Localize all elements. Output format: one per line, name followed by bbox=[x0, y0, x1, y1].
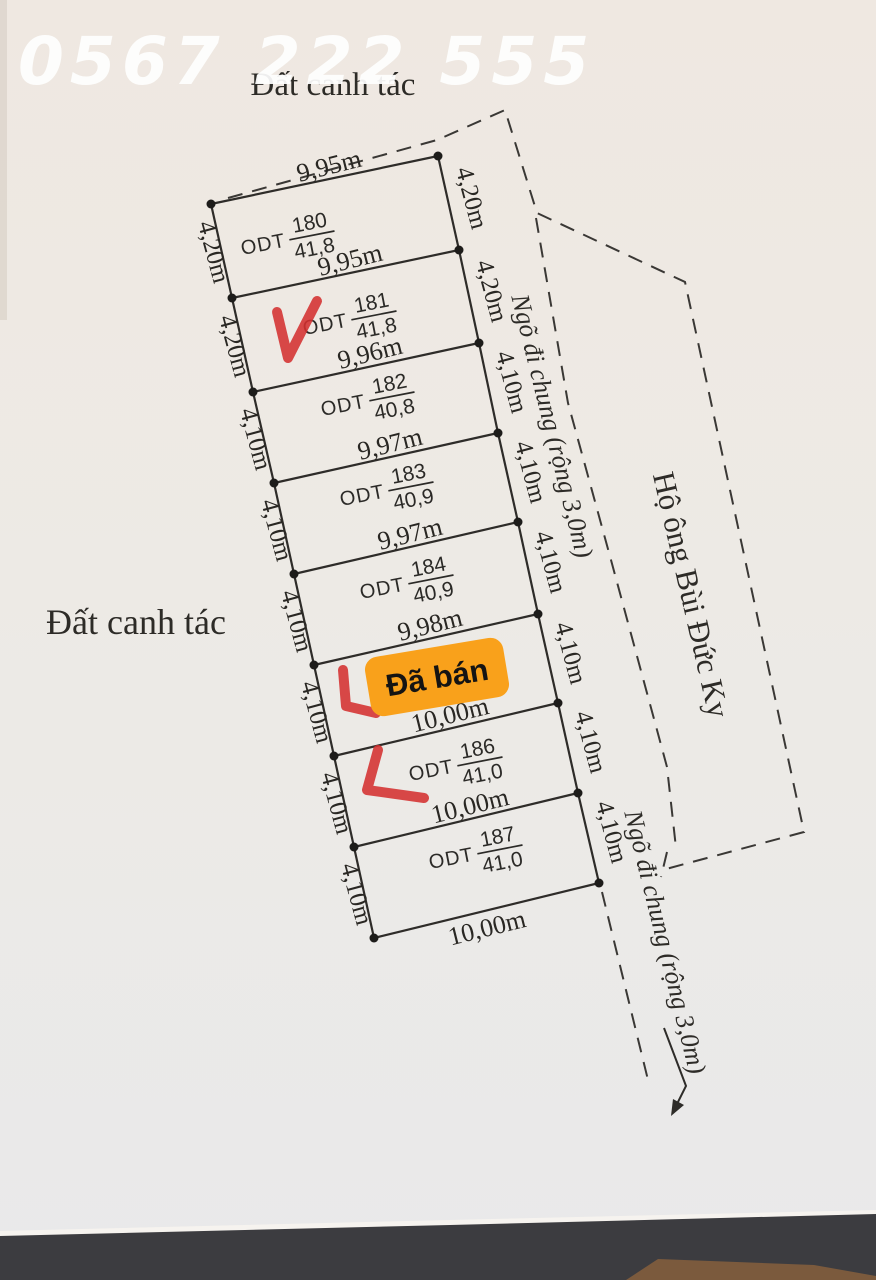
plot-map-svg: Đất canh tác Đất canh tác Ngõ đi chung (… bbox=[0, 0, 876, 1280]
left-land-label: Đất canh tác bbox=[46, 602, 226, 642]
paper-left-edge bbox=[0, 0, 7, 320]
phone-watermark: 0567 222 555 bbox=[18, 23, 595, 100]
land-plot-map-photo: Đất canh tác Đất canh tác Ngõ đi chung (… bbox=[0, 0, 876, 1280]
